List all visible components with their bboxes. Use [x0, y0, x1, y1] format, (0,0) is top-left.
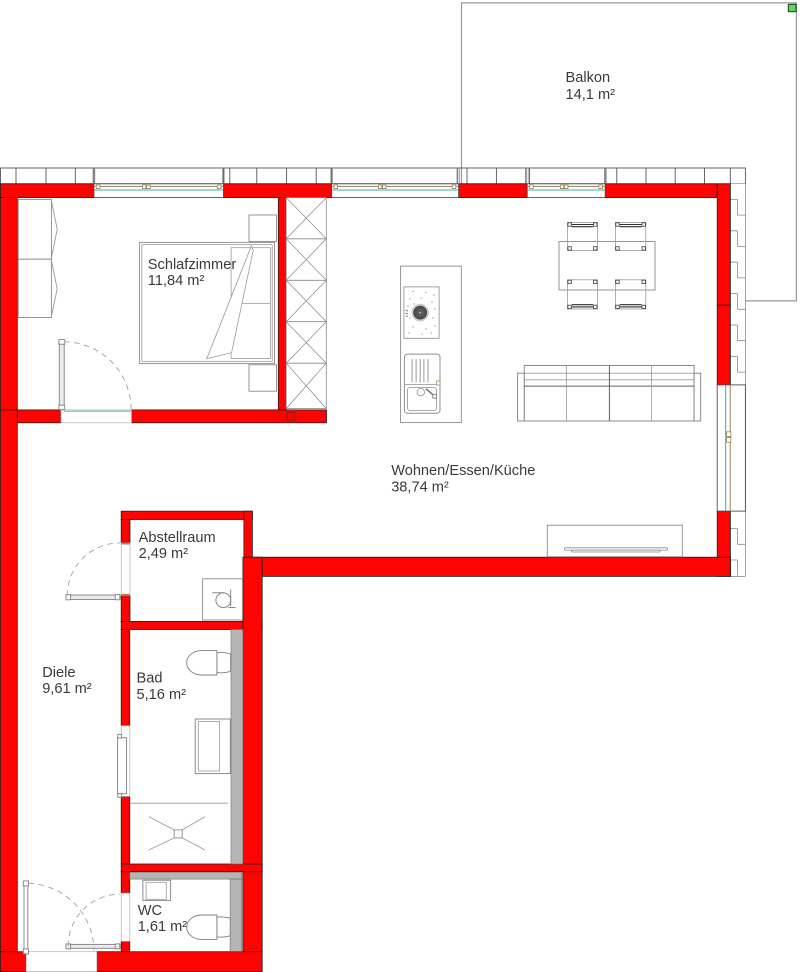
svg-text:9,61 m²: 9,61 m²	[42, 681, 92, 697]
svg-text:14,1 m²: 14,1 m²	[566, 87, 616, 103]
svg-text:1,61 m²: 1,61 m²	[138, 919, 188, 935]
svg-text:Diele: Diele	[42, 665, 75, 681]
svg-text:Balkon: Balkon	[566, 70, 611, 86]
svg-text:5,16 m²: 5,16 m²	[137, 687, 187, 703]
svg-text:WC: WC	[138, 903, 162, 919]
svg-text:Schlafzimmer: Schlafzimmer	[148, 257, 237, 273]
svg-text:Wohnen/Essen/Küche: Wohnen/Essen/Küche	[391, 463, 535, 479]
svg-text:2,49 m²: 2,49 m²	[139, 546, 189, 562]
svg-text:38,74 m²: 38,74 m²	[391, 480, 449, 496]
svg-text:Bad: Bad	[137, 671, 163, 687]
svg-text:11,84 m²: 11,84 m²	[148, 273, 205, 289]
svg-text:Abstellraum: Abstellraum	[139, 530, 216, 546]
